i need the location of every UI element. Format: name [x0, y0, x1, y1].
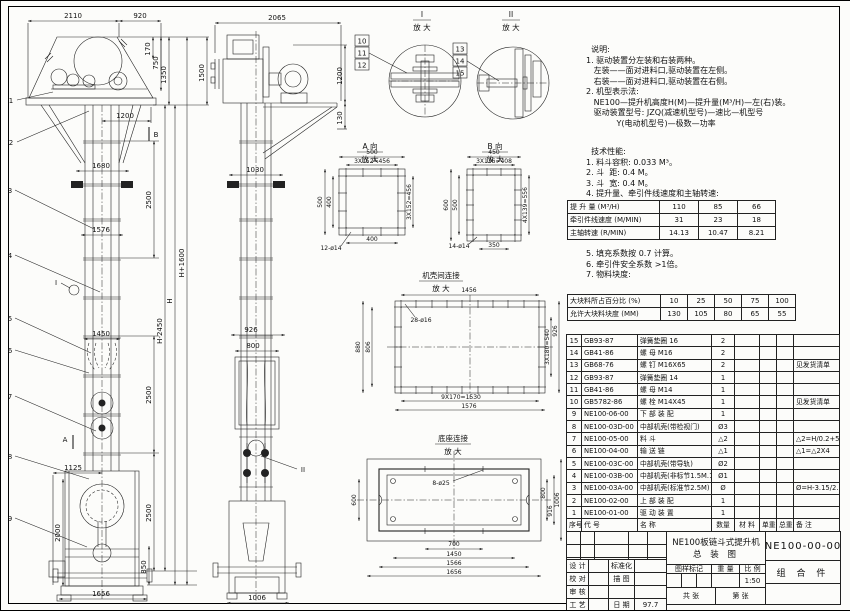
cell	[777, 445, 794, 457]
leader-number: 13	[456, 46, 465, 54]
note-line: 7. 物料块度:	[586, 270, 838, 281]
cell: 65	[742, 308, 769, 321]
cell	[794, 457, 840, 469]
cell: 100	[769, 295, 796, 308]
dim-label: 350	[488, 242, 500, 249]
empty-cell	[765, 583, 841, 605]
note-line: 1. 料斗容积: 0.033 M³。	[586, 158, 838, 169]
cell: 提 升 量 (M³/H)	[568, 201, 660, 214]
cell	[777, 494, 794, 506]
cell	[567, 545, 581, 558]
cell: 代 号	[582, 519, 638, 531]
cell	[735, 384, 760, 396]
dim-label: 2500	[145, 386, 153, 404]
dim-label: 750	[152, 56, 160, 69]
cell: 8.21	[738, 227, 776, 240]
cell: NE100-01-00	[582, 507, 638, 519]
cell	[777, 433, 794, 445]
table-row: 序号代 号名 称数量材 料单重总重备 注	[567, 519, 840, 531]
leader-number: 11	[358, 50, 367, 58]
scale-value: 1:50	[739, 573, 766, 588]
dim-label: 450	[488, 149, 500, 156]
leader-number: 6	[8, 347, 13, 355]
cell: 螺 母 M14	[638, 384, 712, 396]
table-row: 13GB68-76螺 钉 M16X652见发货清单	[567, 359, 840, 371]
cell	[589, 599, 609, 611]
cell	[760, 396, 777, 408]
note-line: 5. 填充系数按 0.7 计算。	[586, 249, 838, 260]
cell: 14.13	[660, 227, 699, 240]
cell: 3	[567, 482, 582, 494]
table-row: 允许大块料块度 (MM)130105806555	[568, 308, 796, 321]
cell	[635, 560, 667, 573]
detail-ii: II 放 大 13 14 15	[453, 10, 549, 119]
cell: 1	[712, 384, 735, 396]
cell	[794, 335, 840, 347]
table-row: 4NE100-03B-00中部机壳(非标节1.5M.1M)Ø1	[567, 470, 840, 482]
cell: 标准化	[609, 560, 635, 573]
dim-label: 916	[547, 505, 554, 517]
table-row: 设 计标准化	[567, 560, 667, 573]
cell	[760, 482, 777, 494]
cell	[794, 494, 840, 506]
cell	[589, 586, 609, 599]
cell: NE100-05-00	[582, 433, 638, 445]
leader-number: 14	[456, 58, 465, 66]
note-line: 2. 斗 距: 0.4 M。	[586, 168, 838, 179]
table-row: 8NE100-03D-00中部机壳(带检视门)Ø3	[567, 421, 840, 433]
cell: 名 称	[638, 519, 712, 531]
leader-number: 5	[8, 315, 12, 323]
cell	[777, 396, 794, 408]
cell: △2	[712, 433, 735, 445]
cell: 料 斗	[638, 433, 712, 445]
view-a: A 向 放 大 500 3X152=456 500 400 3X152=456 …	[317, 141, 413, 252]
cell: 10.47	[699, 227, 738, 240]
cell: 15	[567, 335, 582, 347]
table-row: 校 对描 图	[567, 573, 667, 586]
cell	[777, 359, 794, 371]
cell	[760, 347, 777, 359]
cell: 10	[567, 396, 582, 408]
cell: Ø	[712, 482, 735, 494]
cell: 6	[567, 445, 582, 457]
detail-mark-ii: II	[301, 466, 305, 474]
cell: 2	[567, 494, 582, 506]
dim-label: 880	[355, 341, 362, 353]
cell: △1	[712, 445, 735, 457]
table-row: 2NE100-02-00上 部 装 配1	[567, 494, 840, 506]
dim-label: 700	[448, 541, 460, 548]
cell: 见发货清单	[794, 396, 840, 408]
detail-mark-i: I	[55, 279, 57, 287]
cell: 14	[567, 347, 582, 359]
drawing-number: NE100-00-00	[765, 531, 841, 561]
detail-title: 机壳间连接	[422, 270, 460, 280]
cell	[760, 408, 777, 420]
cell: 75	[742, 295, 769, 308]
cell	[567, 532, 581, 545]
dim-label: H	[166, 298, 174, 303]
note-line: 右装——面对进料口,驱动装置在右侧。	[586, 77, 838, 88]
leader-number: 15	[456, 70, 465, 78]
table-row: 大块料所占百分比 (%)10255075100	[568, 295, 796, 308]
cell	[760, 445, 777, 457]
detail-title: I	[421, 10, 423, 19]
view-b: B 向 放 大 450 3X136=408 600 500 4X139=556 …	[443, 141, 529, 250]
detail-title: II	[509, 10, 513, 19]
cell: Ø1	[712, 470, 735, 482]
cell	[735, 347, 760, 359]
cell	[635, 586, 667, 599]
detail-subtitle: 放 大	[432, 283, 450, 293]
cell: 中部机壳(带导轨)	[638, 457, 712, 469]
cell	[735, 445, 760, 457]
dim-label: 2500	[145, 504, 153, 522]
casing-connection-detail: 机壳间连接 放 大 1456 28-ø16 880 806 3X180=540 …	[355, 270, 559, 410]
dim-label: 400	[366, 236, 378, 243]
note-line: 说明:	[586, 45, 838, 56]
cell: △2=H/0.2+5.75	[794, 433, 840, 445]
cell	[794, 507, 840, 519]
cell: 弹簧垫圈 14	[638, 371, 712, 383]
cell: 螺 栓 M14X45	[638, 396, 712, 408]
cell: 1	[712, 507, 735, 519]
cell: Ø=H-3.15/2.5	[794, 482, 840, 494]
cell	[629, 532, 648, 545]
detail-subtitle: 放 大	[444, 446, 462, 456]
leader-number: 7	[8, 393, 12, 401]
dim-label: 926	[244, 326, 258, 334]
cell: Ø2	[712, 457, 735, 469]
dim-label: 1500	[198, 64, 206, 82]
cell: 中部机壳(非标节1.5M.1M)	[638, 470, 712, 482]
cell: 1	[712, 494, 735, 506]
dim-label: 920	[133, 12, 146, 20]
detail-title: 底座连接	[438, 433, 468, 443]
cell: 7	[567, 433, 582, 445]
cell	[589, 573, 609, 586]
cell: 下 部 装 配	[638, 408, 712, 420]
cell	[777, 335, 794, 347]
cell	[735, 470, 760, 482]
dim-label: 1566	[446, 560, 461, 567]
cell: 4	[567, 470, 582, 482]
cell	[760, 421, 777, 433]
cell	[595, 545, 629, 558]
cell	[735, 494, 760, 506]
cell: 110	[660, 201, 699, 214]
cell: 数量	[712, 519, 735, 531]
note-line: 左装——面对进料口,驱动装置在左侧。	[586, 66, 838, 77]
table-row: 11GB41-86螺 母 M141	[567, 384, 840, 396]
cell: 12	[567, 371, 582, 383]
dim-label: 1656	[92, 590, 110, 598]
cell	[777, 507, 794, 519]
note-line: 2. 机型表示法:	[586, 87, 838, 98]
drawing-area: 2110 920 1 2 1200 B	[1, 1, 566, 610]
cell	[735, 457, 760, 469]
dim-label: 1576	[461, 403, 476, 410]
cell	[735, 371, 760, 383]
detail-subtitle: 放 大	[502, 22, 520, 32]
table-row: 工 艺日 期97.7	[567, 599, 667, 611]
cell	[635, 573, 667, 586]
cell: 大块料所占百分比 (%)	[568, 295, 661, 308]
dim-label: 500	[366, 149, 378, 156]
cell: 80	[715, 308, 742, 321]
table-row	[567, 532, 667, 545]
dim-label: 1450	[92, 330, 110, 338]
dim-label: 1576	[92, 226, 110, 234]
leader-number: 8	[8, 453, 12, 461]
cell	[735, 408, 760, 420]
note-line: 技术性能:	[586, 147, 838, 158]
cell	[794, 384, 840, 396]
dim-label: 2500	[145, 191, 153, 209]
hole-callout: 8-ø25	[432, 480, 449, 487]
cell: 8	[567, 421, 582, 433]
cell	[760, 433, 777, 445]
dim-label: 1656	[446, 569, 461, 576]
cell: 描 图	[609, 573, 635, 586]
dim-label: 1030	[246, 166, 264, 174]
cell: 130	[661, 308, 688, 321]
cell: NE100-03B-00	[582, 470, 638, 482]
note-line: 6. 牵引件安全系数 >1倍。	[586, 260, 838, 271]
leader-number: 2	[9, 139, 13, 147]
dim-label: H-2450	[156, 318, 164, 344]
lump-size-table: 大块料所占百分比 (%)10255075100允许大块料块度 (MM)13010…	[567, 294, 796, 321]
table-row: 提 升 量 (M³/H)1108566	[568, 201, 776, 214]
table-row: 审 核	[567, 586, 667, 599]
dim-label: 170	[144, 42, 152, 55]
cell	[735, 421, 760, 433]
dim-label: 3X136=408	[476, 158, 512, 165]
dim-label: 800	[246, 342, 259, 350]
dim-label: 4X139=556	[522, 187, 529, 223]
dim-label: 926	[552, 325, 559, 337]
cell: GB41-86	[582, 384, 638, 396]
cell: 中部机壳(带检视门)	[638, 421, 712, 433]
cell: 单重	[760, 519, 777, 531]
cell	[760, 457, 777, 469]
table-row: 15GB93-87弹簧垫圈 162	[567, 335, 840, 347]
cell: 主轴转速 (R/MIN)	[568, 227, 660, 240]
stamp-box	[666, 573, 682, 588]
cell: 11	[567, 384, 582, 396]
leader-number: 4	[8, 252, 13, 260]
front-view: 2110 920 1 2 1200 B	[8, 12, 209, 601]
dim-label: 400	[326, 196, 333, 208]
cell	[760, 384, 777, 396]
cell: 弹簧垫圈 16	[638, 335, 712, 347]
hole-callout: 12-ø14	[320, 245, 341, 252]
dim-label: 500	[452, 199, 459, 211]
cell: NE100-06-00	[582, 408, 638, 420]
dim-label: 1006	[554, 492, 561, 507]
cell: GB5782-86	[582, 396, 638, 408]
cell: 上 部 装 配	[638, 494, 712, 506]
table-row: 9NE100-06-00下 部 装 配1	[567, 408, 840, 420]
cell	[581, 545, 595, 558]
cell: 31	[660, 214, 699, 227]
cell: 2	[712, 359, 735, 371]
product-name: NE100板链斗式提升机	[672, 536, 759, 548]
cell: △1=△2X4	[794, 445, 840, 457]
side-view: 2065 1200 130	[211, 14, 407, 603]
dim-label: 2110	[64, 12, 82, 20]
table-row: 5NE100-03C-00中部机壳(带导轨)Ø2	[567, 457, 840, 469]
cell	[735, 482, 760, 494]
cell: 序号	[567, 519, 582, 531]
drawing-sheet: 2110 920 1 2 1200 B	[0, 0, 850, 611]
cell	[794, 371, 840, 383]
title-block: 标记处数更改文件号签 字日 期 设 计标准化校 对描 图审 核工 艺日 期97.…	[566, 531, 841, 605]
cell: 18	[738, 214, 776, 227]
dim-label: 3X180=540	[544, 329, 551, 365]
cell	[777, 482, 794, 494]
cell	[794, 408, 840, 420]
leader-number: 1	[9, 97, 13, 105]
cell	[777, 384, 794, 396]
cell	[760, 359, 777, 371]
cell: 23	[699, 214, 738, 227]
dim-label: 600	[351, 494, 358, 506]
dim-label: 1680	[92, 162, 110, 170]
cell	[794, 470, 840, 482]
cell: 2	[712, 347, 735, 359]
cell	[735, 359, 760, 371]
cell: 10	[661, 295, 688, 308]
note-line: NE100—提升机高度H(M)—提升量(M³/H)—左(右)装。	[586, 98, 838, 109]
table-row: 7NE100-05-00料 斗△2△2=H/0.2+5.75	[567, 433, 840, 445]
cell: 螺 钉 M16X65	[638, 359, 712, 371]
dim-label: 800	[540, 487, 547, 499]
cell	[648, 532, 667, 545]
cell	[581, 532, 595, 545]
detail-subtitle: 放 大	[413, 22, 431, 32]
cell: 55	[769, 308, 796, 321]
section-mark-a: A	[63, 436, 68, 444]
cell	[777, 371, 794, 383]
tech-spec-block: 技术性能:1. 料斗容积: 0.033 M³。2. 斗 距: 0.4 M。3. …	[586, 147, 838, 200]
cell	[609, 586, 635, 599]
cell: 输 送 链	[638, 445, 712, 457]
cell: 1	[712, 371, 735, 383]
table-row: 1NE100-01-00驱 动 装 置1	[567, 507, 840, 519]
table-row: 3NE100-03A-00中部机壳(标准节2.5M)ØØ=H-3.15/2.5	[567, 482, 840, 494]
cell: 5	[567, 457, 582, 469]
table-row: 10GB5782-86螺 栓 M14X451见发货清单	[567, 396, 840, 408]
cell: GB93-87	[582, 335, 638, 347]
dim-label: 1200	[336, 67, 344, 85]
cell: 总重	[777, 519, 794, 531]
cell	[735, 335, 760, 347]
cell: 1	[712, 408, 735, 420]
tech-spec-block-2: 5. 填充系数按 0.7 计算。6. 牵引件安全系数 >1倍。7. 物料块度:	[586, 249, 838, 281]
table-row: 主轴转速 (R/MIN)14.1310.478.21	[568, 227, 776, 240]
cell: 66	[738, 201, 776, 214]
cell: 备 注	[794, 519, 840, 531]
cell: 设 计	[567, 560, 589, 573]
drawing-name-cell: NE100板链斗式提升机 总 装 图	[666, 531, 766, 565]
dim-label: 1456	[461, 287, 476, 294]
cell	[629, 545, 648, 558]
cell: 螺 母 M16	[638, 347, 712, 359]
cell	[777, 347, 794, 359]
leader-number: 3	[8, 187, 12, 195]
table-row: 14GB41-86螺 母 M162	[567, 347, 840, 359]
cell: 牵引件线速度 (M/MIN)	[568, 214, 660, 227]
hole-callout: 14-ø14	[448, 243, 469, 250]
dim-label: 130	[336, 111, 344, 124]
cell: GB93-87	[582, 371, 638, 383]
cell	[760, 470, 777, 482]
cell: 工 艺	[567, 599, 589, 611]
leader-number: 9	[8, 515, 12, 523]
cell: NE100-03C-00	[582, 457, 638, 469]
note-line: 1. 驱动装置分左装和右装两种。	[586, 56, 838, 67]
hole-callout: 28-ø16	[410, 317, 431, 324]
note-line: 4. 提升量、牵引件线速度和主轴转速:	[586, 189, 838, 200]
cell: 允许大块料块度 (MM)	[568, 308, 661, 321]
performance-table: 提 升 量 (M³/H)1108566牵引件线速度 (M/MIN)312318主…	[567, 200, 776, 240]
leader-number: 10	[358, 38, 367, 46]
leader-number: 12	[358, 62, 367, 70]
cell	[760, 494, 777, 506]
cell: 85	[699, 201, 738, 214]
cell	[760, 371, 777, 383]
cell	[777, 421, 794, 433]
dim-label: 1006	[248, 594, 266, 602]
detail-i: I 放 大	[389, 10, 461, 117]
dim-label: 3X152=456	[354, 158, 390, 165]
cell: Ø3	[712, 421, 735, 433]
note-line: 3. 斗 宽: 0.4 M。	[586, 179, 838, 190]
cell	[589, 560, 609, 573]
table-row: 6NE100-04-00输 送 链△1△1=△2X4	[567, 445, 840, 457]
cell	[794, 347, 840, 359]
cell: NE100-02-00	[582, 494, 638, 506]
cell	[735, 396, 760, 408]
table-row: 12GB93-87弹簧垫圈 141	[567, 371, 840, 383]
cell: 中部机壳(标准节2.5M)	[638, 482, 712, 494]
cell: 1	[567, 507, 582, 519]
cell: 9	[567, 408, 582, 420]
cell: 50	[715, 295, 742, 308]
cell: 校 对	[567, 573, 589, 586]
cell: 13	[567, 359, 582, 371]
dim-label: 1350	[160, 66, 168, 84]
cell: GB68-76	[582, 359, 638, 371]
parts-list-table: 15GB93-87弹簧垫圈 16214GB41-86螺 母 M16213GB68…	[566, 334, 840, 532]
cell: 1	[712, 396, 735, 408]
cell: 审 核	[567, 586, 589, 599]
dim-label: 2000	[54, 524, 62, 542]
stamp-box	[681, 573, 697, 588]
cell	[735, 507, 760, 519]
cell: NE100-03A-00	[582, 482, 638, 494]
cell: 材 料	[735, 519, 760, 531]
cell	[648, 545, 667, 558]
notes-block: 说明:1. 驱动装置分左装和右装两种。 左装——面对进料口,驱动装置在左侧。 右…	[586, 45, 838, 129]
cell: 97.7	[635, 599, 667, 611]
drawing-type: 总 装 图	[693, 548, 739, 560]
table-row	[567, 545, 667, 558]
cell	[760, 507, 777, 519]
cell	[760, 335, 777, 347]
